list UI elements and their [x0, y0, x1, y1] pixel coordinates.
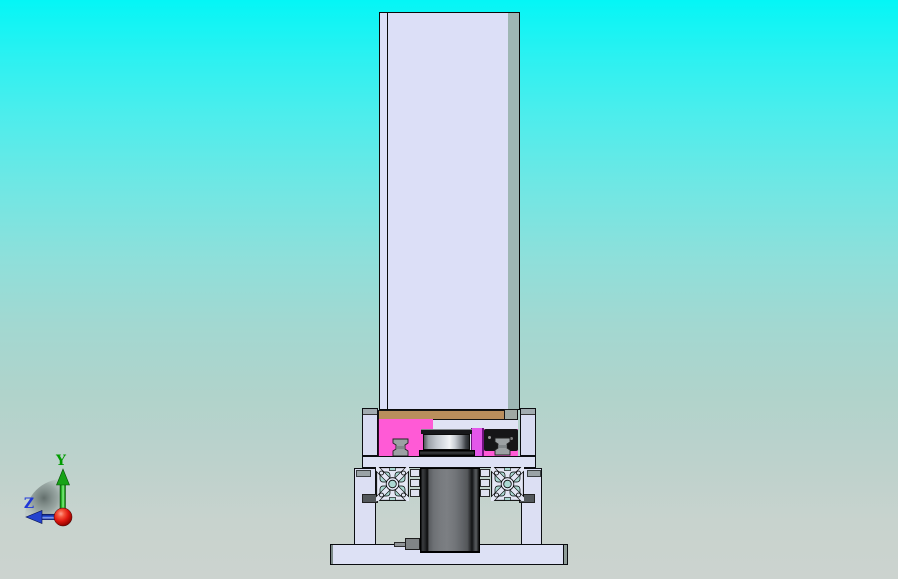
aluminum-extrusion-right[interactable] — [491, 467, 524, 501]
post-cap — [521, 409, 535, 415]
tslot-clamp-right[interactable] — [492, 437, 513, 456]
y-axis-label: Y — [55, 453, 67, 469]
vertical-column-rail[interactable] — [379, 12, 520, 410]
leg-bracket-tab-left — [356, 470, 371, 477]
support-leg-left[interactable] — [354, 468, 376, 545]
support-leg-right[interactable] — [521, 468, 542, 545]
tslot-clamp-left[interactable] — [390, 438, 411, 457]
aluminum-extrusion-left[interactable] — [376, 467, 409, 501]
column-edge-line — [387, 13, 388, 409]
base-edge-right — [563, 545, 567, 564]
idler-pulley[interactable] — [423, 434, 470, 450]
orientation-triad[interactable]: Y Z — [12, 443, 116, 547]
leg-bracket-tab-right — [527, 470, 541, 477]
extrusion-slot-tabs-left — [410, 469, 420, 497]
screw-head — [488, 436, 491, 439]
base-edge-left — [331, 545, 333, 564]
post-cap — [363, 409, 377, 415]
motor-connector[interactable] — [405, 538, 420, 550]
cad-3d-viewport[interactable]: Y Z — [0, 0, 898, 579]
stepper-motor-body[interactable] — [420, 468, 480, 553]
origin-sphere — [54, 508, 72, 526]
extrusion-slot-tabs-right — [480, 469, 490, 497]
z-axis-label: Z — [24, 496, 34, 512]
column-side-face — [508, 13, 519, 409]
y-axis-arrowhead — [57, 469, 70, 485]
upper-post-right[interactable] — [520, 408, 536, 456]
upper-post-left[interactable] — [362, 408, 378, 456]
